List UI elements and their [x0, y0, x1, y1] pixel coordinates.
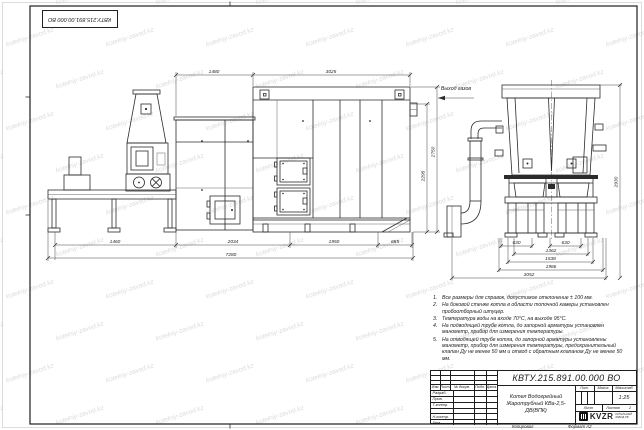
- dim-front-height-inner: 2295: [421, 170, 427, 182]
- dim-side-b4: 1538: [545, 256, 556, 262]
- dim-front-bottom-3: 1950: [329, 239, 340, 245]
- product-name-line1: Котел Водогрейный: [510, 394, 562, 401]
- title-doc-number: КВТУ.215.891.00.000 ВО: [497, 371, 636, 385]
- note-item: 1. Все размеры для справок, допустимое о…: [433, 295, 630, 301]
- dim-side-b3: 1362: [546, 248, 557, 254]
- notes-block: 1. Все размеры для справок, допустимое о…: [433, 295, 630, 363]
- dim-front-bottom-1: 1460: [110, 239, 121, 245]
- row-utv: Утв.: [431, 419, 453, 425]
- dim-front-overall: 7280: [226, 252, 237, 258]
- note-item: 4. На подводящей трубе котла, до запорно…: [433, 323, 630, 336]
- note-item: 5. На отводящей трубе котла, до запорной…: [433, 337, 630, 362]
- scale-value: 1:25: [612, 391, 636, 404]
- logo-sub-line2: ЗАВОД РФ: [615, 416, 632, 419]
- dim-side-b5: 1986: [546, 264, 557, 270]
- dim-side-b2: 630: [561, 240, 569, 246]
- note-number: 5.: [433, 337, 442, 362]
- title-block: Изм. Лист № докум. Подп. Дата Разраб. Пр…: [430, 370, 637, 424]
- note-text: На боковой стенке котла в области топочн…: [442, 302, 630, 315]
- dim-front-top-1: 1480: [209, 69, 220, 75]
- note-text: Температура воды на входе 70°С, на выход…: [442, 316, 630, 322]
- kvzr-logo-icon: [579, 412, 588, 421]
- product-name-line2: Жаротрубный КВа-2,5-ДВ(ВПК): [497, 401, 575, 415]
- dim-side-b6: 3052: [524, 272, 535, 278]
- drawing-canvas: 1480 3025 2750 2295 1460 2034 1950 685: [0, 0, 644, 430]
- logo-subtext: КОТЕЛЬНЫЙ ЗАВОД РФ: [615, 413, 632, 419]
- side-dimensions: 630 630 1362 1538 1986 3052 2930: [450, 83, 622, 280]
- note-number: 1.: [433, 295, 442, 301]
- copied-label: Копировал: [512, 424, 533, 429]
- note-number: 4.: [433, 323, 442, 336]
- note-number: 3.: [433, 316, 442, 322]
- lit-label: Лит.: [575, 385, 594, 391]
- front-view: [48, 87, 417, 232]
- sheet-frame: [3, 2, 642, 429]
- dim-front-bottom-2: 2034: [227, 239, 239, 245]
- flipped-doc-number-stamp: КВТУ.215.891.00.000 ВО: [42, 10, 118, 28]
- gas-outlet-label: Выход газов: [441, 86, 472, 92]
- col-podp: Подп.: [474, 384, 486, 390]
- note-item: 3. Температура воды на входе 70°С, на вы…: [433, 316, 630, 322]
- dim-front-bottom-4: 685: [391, 239, 399, 245]
- note-item: 2. На боковой стенке котла в области топ…: [433, 302, 630, 315]
- format-label: Формат А2: [568, 424, 592, 429]
- note-text: На подводящей трубе котла, до запорной а…: [442, 323, 630, 336]
- col-data: Дата: [486, 384, 497, 390]
- logo-text: KVZR: [590, 412, 613, 421]
- mass-label: Масса: [594, 385, 612, 391]
- dim-front-top-2: 3025: [326, 69, 337, 75]
- flipped-doc-number: КВТУ.215.891.00.000 ВО: [48, 16, 111, 22]
- dim-side-b1: 630: [512, 240, 520, 246]
- drawing-sheet: kotelniy-zavod.kzkotelniy-zavod.kzkoteln…: [0, 0, 644, 430]
- col-doc: № докум.: [450, 384, 474, 390]
- note-text: На отводящей трубе котла, до запорной ар…: [442, 337, 630, 362]
- dim-front-height-outer: 2750: [431, 146, 437, 158]
- product-name: Котел Водогрейный Жаротрубный КВа-2,5-ДВ…: [497, 385, 575, 423]
- note-text: Все размеры для справок, допустимое откл…: [442, 295, 630, 301]
- manufacturer-logo: KVZR КОТЕЛЬНЫЙ ЗАВОД РФ: [575, 409, 636, 423]
- side-view: Выход газов: [438, 80, 606, 240]
- note-number: 2.: [433, 302, 442, 315]
- gas-outlet-arrow-icon: [438, 96, 445, 100]
- dim-side-height: 2930: [614, 176, 620, 188]
